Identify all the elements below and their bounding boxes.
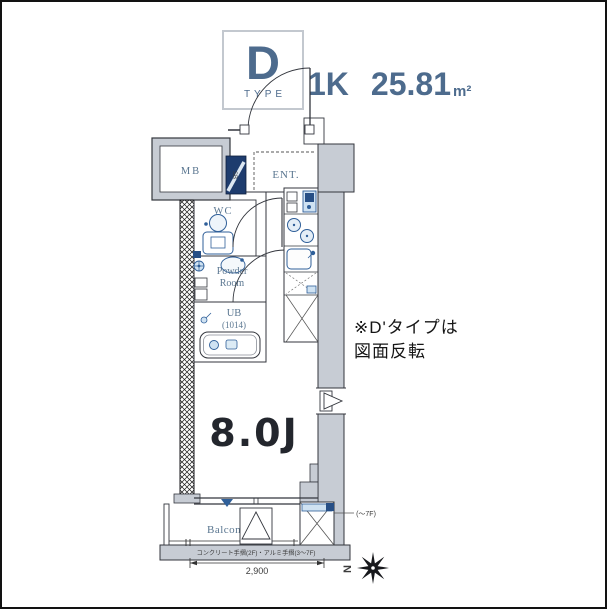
wall-top-right	[318, 144, 354, 192]
washer-tap-box-icon	[193, 251, 201, 258]
wall-step-2	[300, 482, 318, 502]
compass-north-label: N	[342, 565, 354, 573]
pipe-space-box	[195, 278, 207, 287]
utility-box-1	[287, 192, 297, 201]
bath-label: UB	[227, 308, 242, 319]
toilet-base-icon	[203, 232, 233, 254]
floor-plan-page: D TYPE 1K 25.81 m² ※D'タイプは 図面反転	[0, 0, 607, 609]
powder-room: Powder Room	[193, 251, 266, 302]
kitchen	[284, 188, 318, 342]
bath-drain-icon	[210, 341, 219, 350]
bathroom: UB (1014)	[194, 302, 266, 362]
toilet-lid-icon	[210, 215, 227, 232]
balcony-side-wall	[164, 504, 169, 545]
main-room: 8.0J	[194, 411, 318, 507]
toilet-valve-icon	[204, 222, 208, 226]
ac-valve-icon	[326, 503, 334, 511]
wall-step-1	[310, 464, 318, 482]
window-lock-icon	[221, 499, 233, 507]
bath-size-label: (1014)	[222, 320, 246, 330]
wc-room: WC	[194, 200, 256, 256]
powder-room-label-2: Room	[220, 278, 245, 289]
shoe-box-label: SB	[231, 171, 237, 179]
width-dimension: 2,900	[246, 566, 269, 576]
floor-plan-drawing: ENT. SB WC Powder	[2, 2, 607, 609]
washer-drum-icon	[305, 193, 314, 202]
bath-faucet-icon	[226, 340, 237, 349]
counter-outlet-icon	[307, 286, 316, 293]
ac-floors-note: (〜7F)	[356, 511, 376, 518]
storage-box	[195, 289, 207, 300]
entrance-label: ENT.	[272, 169, 299, 181]
door-jamb-left	[240, 125, 249, 134]
compass-center	[371, 566, 375, 570]
hatched-wall	[180, 200, 194, 496]
kitchen-sink-icon	[287, 249, 311, 269]
entry-door-swing-arc	[248, 68, 310, 130]
washbasin-faucet-icon	[240, 258, 244, 262]
door-jamb-right	[305, 125, 314, 134]
entrance: ENT. SB	[226, 68, 316, 194]
annotations: コンクリート手摺(2F)・アルミ手摺(3〜7F) 2,900 N	[190, 549, 389, 584]
door-swing-arc-1	[233, 198, 282, 247]
handrail-note: コンクリート手摺(2F)・アルミ手摺(3〜7F)	[197, 549, 316, 557]
dimension-arrow-right	[317, 561, 324, 565]
main-room-label: 8.0J	[209, 411, 298, 455]
meter-box-label: MB	[181, 166, 201, 177]
utility-box-2	[287, 203, 297, 212]
dimension-arrow-left	[190, 561, 197, 565]
